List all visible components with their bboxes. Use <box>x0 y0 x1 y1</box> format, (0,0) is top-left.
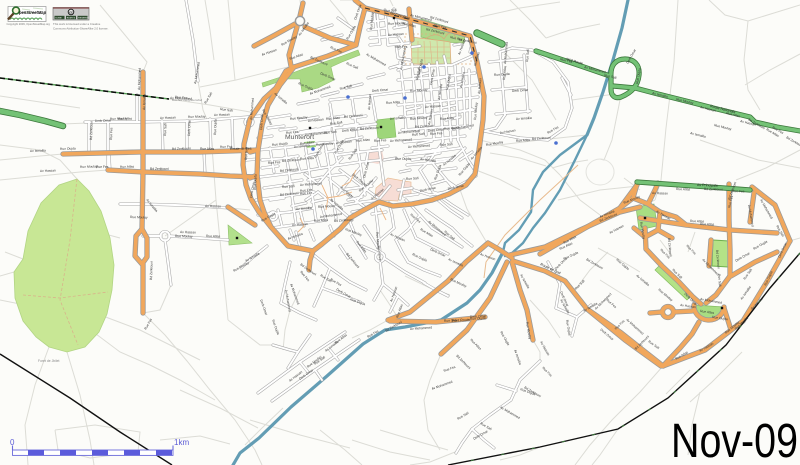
svg-text:Bd Zerktouni: Bd Zerktouni <box>149 261 154 280</box>
svg-text:Rue Atlas: Rue Atlas <box>700 222 715 227</box>
svg-text:Rue Moulay: Rue Moulay <box>80 164 98 169</box>
svg-text:Rue Fes: Rue Fes <box>732 189 745 193</box>
svg-text:Bd Zerktouni: Bd Zerktouni <box>89 121 94 140</box>
svg-text:Rue Oujda: Rue Oujda <box>60 146 76 151</box>
svg-text:Derb Omar: Derb Omar <box>187 119 192 136</box>
svg-text:Bd Zerktouni: Bd Zerktouni <box>150 167 169 171</box>
svg-text:Av Principale: Av Principale <box>697 183 718 188</box>
svg-text:RIGHTS: RIGHTS <box>67 18 76 20</box>
svg-text:Copyright 2009, OpenStreetMap.: Copyright 2009, OpenStreetMap.org <box>7 22 51 26</box>
svg-text:Munterort: Munterort <box>285 134 314 141</box>
svg-text:Av Mohammed: Av Mohammed <box>137 68 142 90</box>
svg-text:Rue Fes: Rue Fes <box>96 165 109 169</box>
svg-text:Av Hassan: Av Hassan <box>205 204 221 209</box>
svg-text:Bd Zerktouni: Bd Zerktouni <box>172 146 191 151</box>
svg-text:This work is licensed under a: This work is licensed under a Creative <box>53 22 101 26</box>
svg-text:Foret de Jbilet: Foret de Jbilet <box>38 359 60 363</box>
svg-text:Rue Moulay: Rue Moulay <box>188 114 206 119</box>
svg-text:Rue Atlas: Rue Atlas <box>118 116 133 121</box>
svg-text:0: 0 <box>10 438 15 447</box>
svg-text:Av Hassan: Av Hassan <box>652 191 668 196</box>
svg-text:Rue Atlas: Rue Atlas <box>206 234 221 239</box>
svg-text:Rue Moulay: Rue Moulay <box>175 234 193 239</box>
svg-text:cc: cc <box>69 10 73 14</box>
svg-text:Av Ismailia: Av Ismailia <box>30 148 46 153</box>
svg-text:Route de Fes: Route de Fes <box>230 147 252 151</box>
svg-text:Rue Oujda: Rue Oujda <box>395 157 411 161</box>
svg-text:Av Hassan: Av Hassan <box>40 168 56 173</box>
svg-text:Bd Zerktouni: Bd Zerktouni <box>704 187 723 192</box>
svg-text:Rue Atlas: Rue Atlas <box>120 164 135 169</box>
svg-text:Derb Omar: Derb Omar <box>95 118 112 123</box>
svg-text:Av Hassan: Av Hassan <box>214 112 230 117</box>
svg-text:Rue Atlas: Rue Atlas <box>676 187 691 192</box>
svg-text:SOME: SOME <box>55 18 62 20</box>
svg-text:Commons Attribution-ShareAlike: Commons Attribution-ShareAlike 2.0 licen… <box>53 27 109 31</box>
svg-text:Av Hassan: Av Hassan <box>180 230 196 235</box>
svg-text:Rue Oujda: Rue Oujda <box>213 119 218 135</box>
svg-text:Nov-09: Nov-09 <box>671 415 798 465</box>
svg-text:RESERVD: RESERVD <box>78 18 89 20</box>
svg-text:Rue Fes: Rue Fes <box>109 127 113 140</box>
svg-text:Av Hassan: Av Hassan <box>160 115 176 120</box>
svg-text:1km: 1km <box>174 438 189 447</box>
svg-text:Rue Moulay: Rue Moulay <box>130 215 148 220</box>
svg-text:Rue Safi: Rue Safi <box>163 123 167 136</box>
svg-text:penStreetMap: penStreetMap <box>18 10 47 15</box>
svg-text:Bou.les Vierghdensfod: Bou.les Vierghdensfod <box>172 98 202 102</box>
svg-text:Rue Atlas: Rue Atlas <box>200 147 214 151</box>
svg-text:Av Ismailia: Av Ismailia <box>142 94 147 110</box>
